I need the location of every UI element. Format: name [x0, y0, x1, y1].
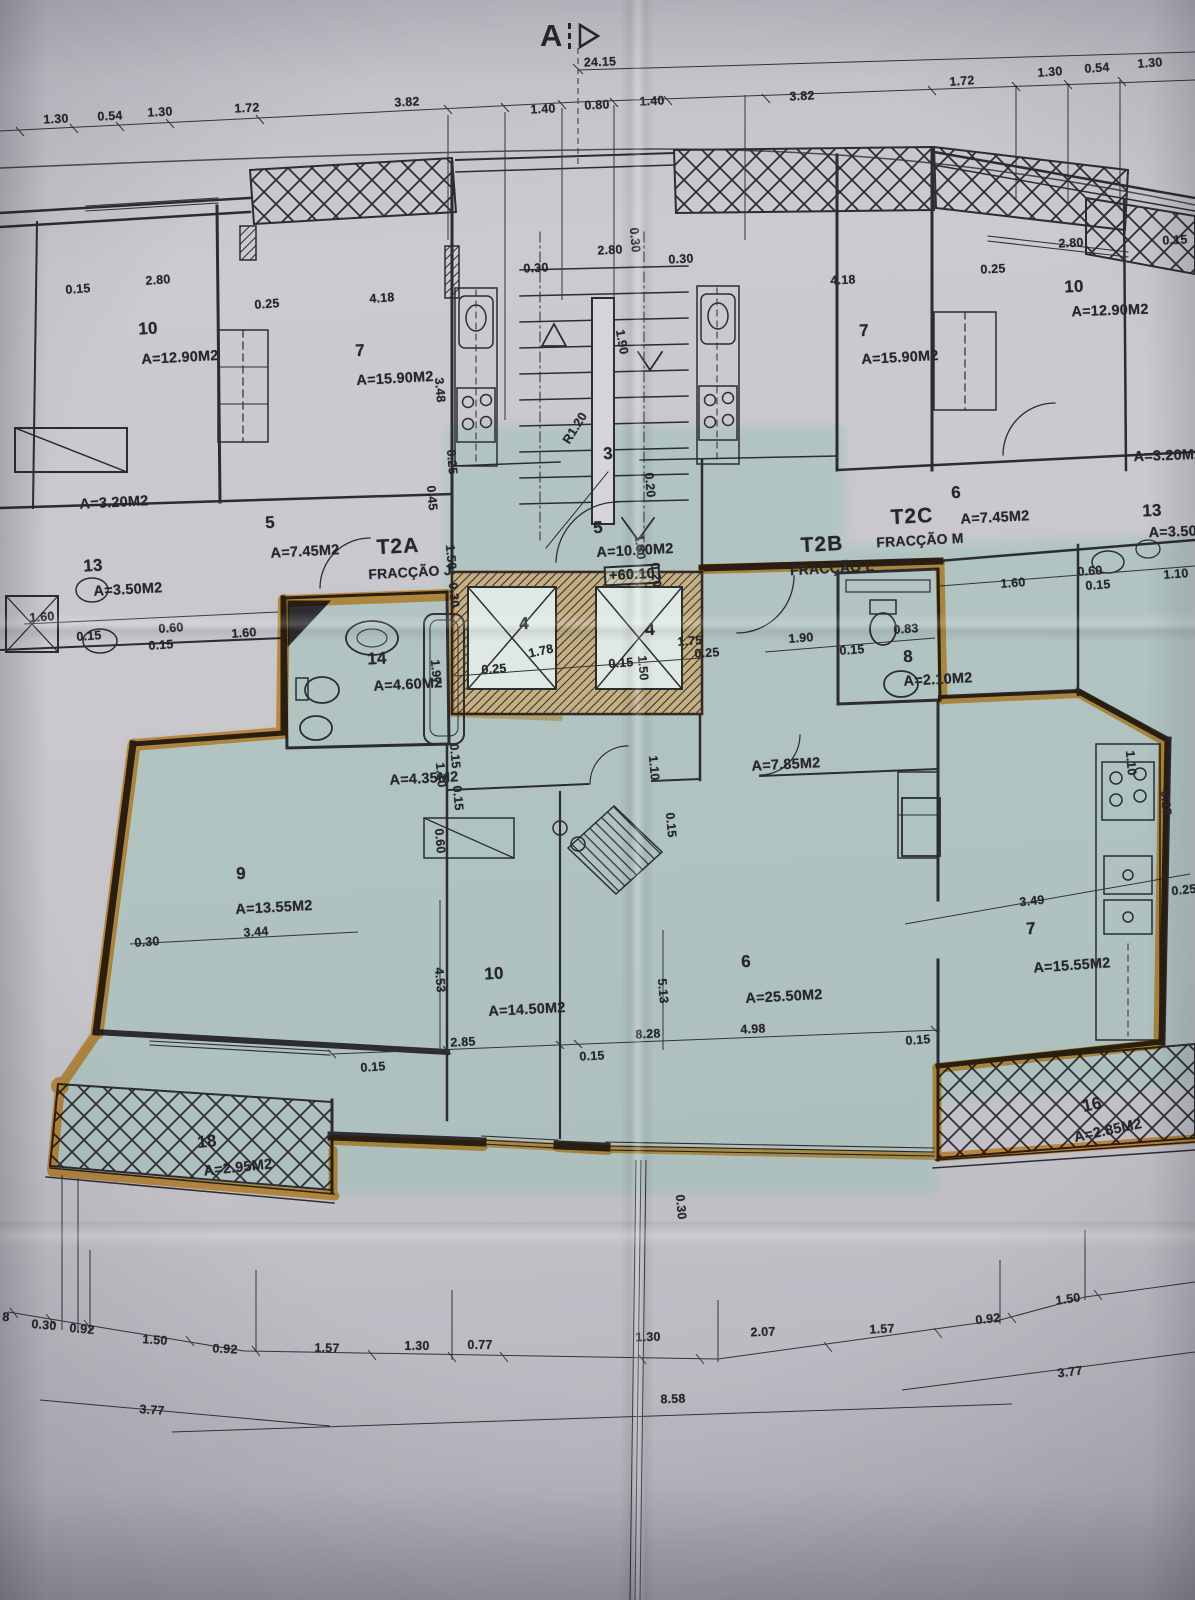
- stair-down-arrow-icon: [638, 352, 662, 370]
- section-marker: A: [540, 18, 601, 54]
- sink-icon: [701, 294, 735, 344]
- floorplan-photo: A 24.151.300.541.301.723.821.400.801.403…: [0, 0, 1195, 1600]
- stair-up-arrow-icon: [542, 324, 566, 346]
- toilet-left-icon: [76, 578, 108, 602]
- floorplan-drawing: [0, 0, 1195, 1600]
- elevator-shaft: [450, 570, 704, 716]
- door-arc-t2c: [1003, 403, 1055, 455]
- section-arrow-icon: [577, 22, 601, 50]
- door-arc-t2a: [320, 538, 370, 588]
- sink-left-icon: [83, 629, 117, 653]
- section-letter: A: [540, 18, 562, 54]
- section-cut-line: [568, 23, 571, 49]
